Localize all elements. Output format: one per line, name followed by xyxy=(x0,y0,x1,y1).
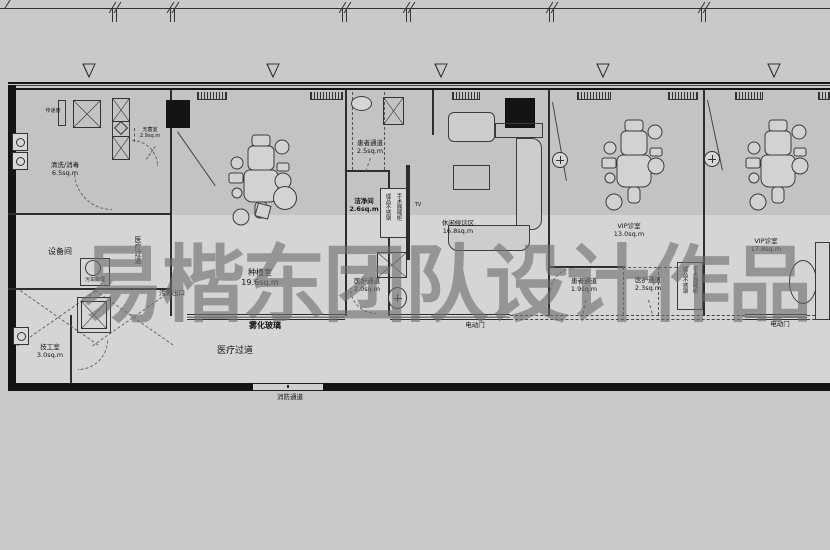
datum-break xyxy=(340,0,350,24)
wall-block-implant xyxy=(166,100,190,128)
room-label-staff-corridor-23: 医护通道2.3sq.m xyxy=(626,277,670,293)
datum-break xyxy=(699,0,709,24)
pass-window-label: 传递窗 xyxy=(40,108,66,114)
instrument-cabinet: 成品不锈钢 手术器械柜 xyxy=(677,262,703,310)
room-label-waiting: 休闲候诊区16.8sq.m xyxy=(424,220,492,236)
room-label-equipment: 设备间 xyxy=(28,247,92,257)
wall-left-exterior xyxy=(8,85,16,391)
waste-cart-label: 污车处理 xyxy=(80,277,110,283)
sink xyxy=(12,133,28,151)
blind-comb xyxy=(735,92,763,100)
fog-glass-partition xyxy=(187,314,345,320)
room-label-vip-13: VIP诊室13.0sq.m xyxy=(605,223,653,239)
round-table xyxy=(273,186,297,210)
corridor-dash xyxy=(623,267,624,315)
diffuser-icon xyxy=(767,63,781,83)
wall-vip13-corridor xyxy=(548,266,625,268)
dental-chair-symbol xyxy=(598,118,668,222)
datum-break xyxy=(110,0,120,24)
datum-break xyxy=(547,0,557,24)
pocket-door-wheel xyxy=(704,151,720,167)
blind-comb xyxy=(668,92,698,100)
diffuser-icon xyxy=(82,63,96,83)
datum-break xyxy=(168,0,178,24)
fire-passage-label: 消防通道 xyxy=(268,394,312,402)
cabinet-text-col1: 成品不锈钢 xyxy=(681,266,687,294)
waste-cart-circle xyxy=(85,260,101,276)
basin xyxy=(351,96,372,111)
medical-aisle-label: 医疗过道 xyxy=(210,346,260,357)
room-label-clean-room: 洁净间2.6sq.m xyxy=(342,198,386,214)
equipment-cylinder xyxy=(388,287,407,309)
tv-wall xyxy=(406,165,410,260)
wall-stub-waiting xyxy=(432,90,434,135)
room-label-patient-corridor-19: 患者通道1.9sq.m xyxy=(561,278,607,294)
cabinet-xbox xyxy=(73,100,101,128)
side-table xyxy=(495,123,543,138)
cabinet-right xyxy=(815,242,830,320)
cabinet-xbox xyxy=(377,252,407,278)
cabinet-xbox xyxy=(383,97,404,125)
electric-door-label-right: 电动门 xyxy=(762,321,798,329)
wall-top-exterior xyxy=(8,82,830,90)
datum-break xyxy=(404,0,414,24)
rug-square xyxy=(453,165,490,190)
medical-aisle-vertical-label: 医疗过道 xyxy=(134,236,141,288)
room-label-staff-corridor-20: 医护通道2.0sq.m xyxy=(344,278,390,294)
room-label-vip-17: VIP诊室17.8sq.m xyxy=(740,238,792,254)
rug-oval xyxy=(789,260,817,304)
fog-glass-label: 雾化玻璃 xyxy=(242,321,288,331)
sofa-vertical xyxy=(516,138,542,230)
tech-shaft-x xyxy=(81,301,107,329)
room-label-sterile: 无菌室2.9sq.m xyxy=(130,127,170,139)
wall-equipment-bottom xyxy=(8,288,172,290)
shaft-x-bottom xyxy=(112,136,130,160)
electric-door-label-left: 电动门 xyxy=(457,322,493,330)
blind-comb xyxy=(577,92,611,100)
blind-comb xyxy=(310,92,343,100)
diffuser-icon xyxy=(434,63,448,83)
wall-bottom-exterior xyxy=(8,383,830,391)
dental-chair-symbol xyxy=(742,118,812,222)
sink xyxy=(13,327,29,345)
room-label-technician: 技工室3.0sq.m xyxy=(20,344,80,360)
wall-equipment-top xyxy=(8,213,172,215)
floor-shade-lower xyxy=(8,215,830,383)
cabinet-text-col2: 手术器械柜 xyxy=(691,266,697,294)
electric-door-track xyxy=(510,315,745,320)
dental-chair-symbol xyxy=(225,133,295,237)
fire-exit-tick xyxy=(287,385,289,388)
waste-exit-label: 污物出口 xyxy=(153,290,191,298)
diffuser-icon xyxy=(596,63,610,83)
tv-label: TV xyxy=(411,202,425,208)
sink xyxy=(12,152,28,170)
pocket-door-wheel xyxy=(552,152,568,168)
cabinet-text-col2: 手术器械柜 xyxy=(395,193,401,221)
blind-comb xyxy=(197,92,227,100)
room-label-implant: 种植室19.6sq.m xyxy=(224,268,296,287)
coffee-table xyxy=(448,112,495,142)
room-label-sterilization: 清洗/消毒6.5sq.m xyxy=(30,162,100,178)
shaft-x-top xyxy=(112,98,130,122)
fog-glass-partition xyxy=(390,314,510,320)
wall-patient25-bottom xyxy=(345,170,390,172)
wall-waiting-vip13 xyxy=(548,90,550,316)
blind-comb xyxy=(452,92,480,100)
blind-comb xyxy=(818,92,830,100)
floor-plan-canvas: 污车处理 成品不锈钢 手术器械柜 TV xyxy=(0,0,830,550)
diffuser-icon xyxy=(266,63,280,83)
room-label-patient-corridor-25: 患者通道2.5sq.m xyxy=(347,140,393,156)
wall-vip13-vip17 xyxy=(703,90,705,316)
